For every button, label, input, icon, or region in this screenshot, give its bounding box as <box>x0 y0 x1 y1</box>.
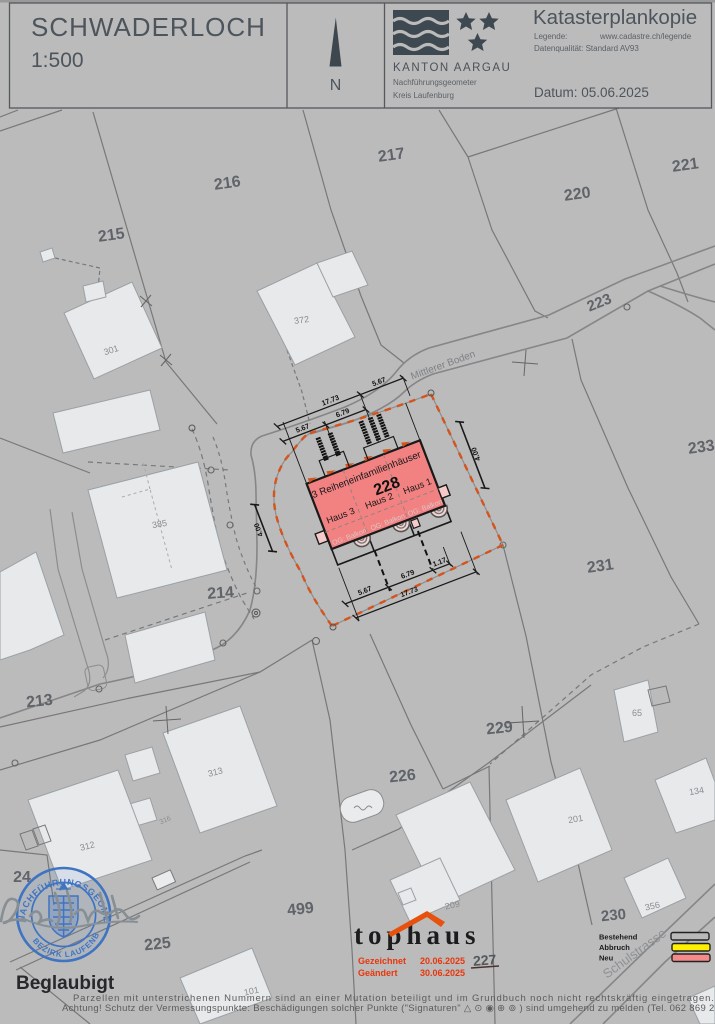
svg-text:Achtung! Schutz der Vermessung: Achtung! Schutz der Vermessungspunkte: B… <box>62 1003 715 1014</box>
svg-text:Datum: 05.06.2025: Datum: 05.06.2025 <box>534 85 649 100</box>
svg-text:Gezeichnet: Gezeichnet <box>358 956 406 966</box>
svg-text:Abbruch: Abbruch <box>599 943 630 952</box>
svg-text:225: 225 <box>143 935 171 955</box>
svg-text:372: 372 <box>293 314 309 326</box>
svg-text:20.06.2025: 20.06.2025 <box>420 956 465 966</box>
svg-text:Bestehend: Bestehend <box>599 933 638 942</box>
svg-text:499: 499 <box>286 900 314 920</box>
svg-text:1:500: 1:500 <box>31 49 84 72</box>
svg-text:Datenqualität: Standard AV93: Datenqualität: Standard AV93 <box>534 44 639 53</box>
svg-text:65: 65 <box>632 708 642 718</box>
svg-text:Legende:: Legende: <box>534 32 567 41</box>
svg-text:233: 233 <box>687 437 715 458</box>
svg-text:230: 230 <box>600 906 627 926</box>
svg-text:226: 226 <box>388 767 416 787</box>
svg-text:SCHWADERLOCH: SCHWADERLOCH <box>31 12 266 42</box>
svg-text:tophaus: tophaus <box>354 920 481 950</box>
svg-text:229: 229 <box>485 719 513 739</box>
svg-text:Beglaubigt: Beglaubigt <box>16 973 115 994</box>
svg-text:Katasterplankopie: Katasterplankopie <box>533 6 697 29</box>
svg-text:N: N <box>330 77 342 94</box>
svg-text:Geändert: Geändert <box>358 968 398 978</box>
svg-text:Kreis Laufenburg: Kreis Laufenburg <box>393 91 454 100</box>
svg-text:Nachführungsgeometer: Nachführungsgeometer <box>393 78 477 87</box>
svg-text:30.06.2025: 30.06.2025 <box>420 968 465 978</box>
svg-text:Neu: Neu <box>599 954 614 963</box>
svg-text:KANTON AARGAU: KANTON AARGAU <box>393 62 511 74</box>
svg-text:214: 214 <box>207 584 235 603</box>
svg-text:www.cadastre.ch/legende: www.cadastre.ch/legende <box>599 32 692 41</box>
svg-text:213: 213 <box>25 692 53 712</box>
